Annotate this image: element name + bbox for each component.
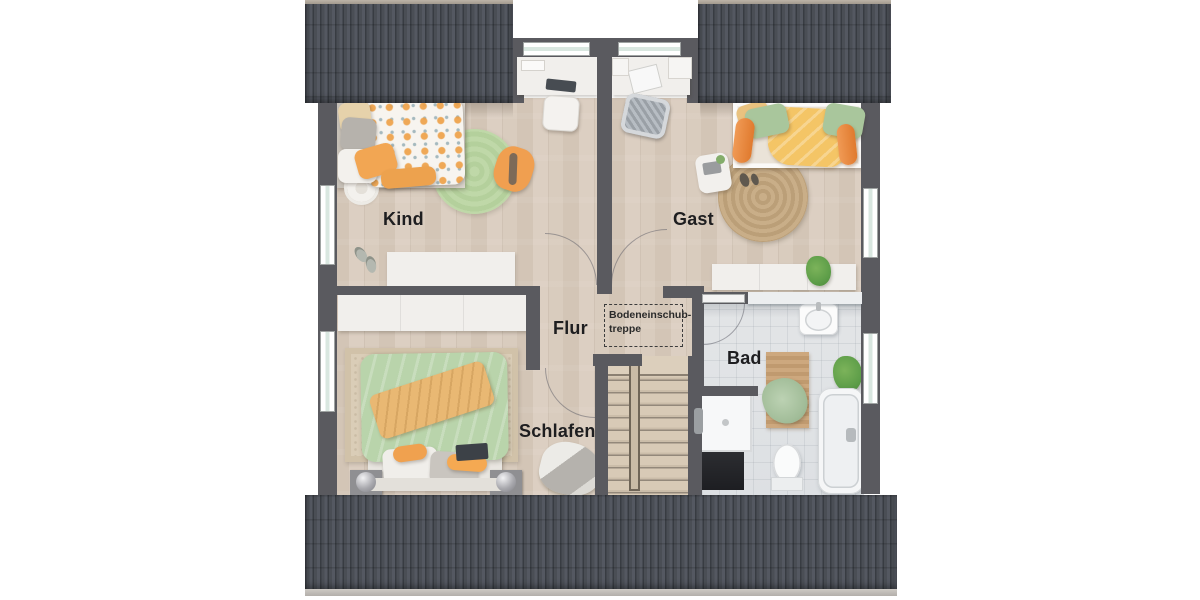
attic-hatch-outline: Bodeneinschub- treppe <box>604 304 683 347</box>
tablet-on-bed <box>455 443 488 461</box>
room-label-flur: Flur <box>553 318 588 339</box>
doll-on-cushion <box>508 153 517 185</box>
dresser-kind <box>387 252 515 287</box>
shower-head <box>694 408 703 434</box>
room-label-schlafen: Schlafen <box>519 421 596 442</box>
dormer-window-right <box>618 42 681 56</box>
toilet-tank <box>771 477 803 491</box>
bath-cabinet-black <box>696 452 744 490</box>
shower-drain <box>722 419 729 426</box>
room-label-bad: Bad <box>727 348 762 369</box>
window-gast-right <box>863 188 878 258</box>
floor-plan-canvas: Bodeneinschub- treppe Kind Gast Flur Sch… <box>0 0 1200 600</box>
kneewall-bad-north <box>748 292 862 304</box>
wall-kind-schlafen <box>318 286 535 295</box>
wall-stub-schlafen-east <box>526 286 540 370</box>
sphere-lamp-left <box>356 472 376 492</box>
wall-kind-gast <box>597 38 612 294</box>
room-label-gast: Gast <box>673 209 714 230</box>
bad-door-leaf <box>702 294 745 303</box>
attic-hatch-label-line2: treppe <box>609 322 678 336</box>
desk-shelf-gast-left <box>612 58 629 76</box>
window-schlafen-left <box>320 331 335 412</box>
desk-shelf-kind <box>521 60 545 71</box>
wall-stair-left <box>595 360 608 497</box>
wardrobe-schlafen <box>338 293 527 331</box>
window-kind-left <box>320 185 335 265</box>
bath-sink-faucet <box>816 302 821 311</box>
desk-chair-kind <box>542 95 580 132</box>
desk-shelf-gast-right <box>668 57 692 79</box>
window-bad-right <box>863 333 878 404</box>
roof-ridge-left <box>305 0 513 4</box>
stair-railing <box>629 360 640 491</box>
plant-gast <box>806 256 831 286</box>
wall-left <box>318 98 337 497</box>
roof-bottom <box>305 495 897 590</box>
bed-schlafen-headboard <box>368 478 502 491</box>
room-label-kind: Kind <box>383 209 424 230</box>
roof-top-right <box>698 0 891 103</box>
dormer-window-left <box>523 42 590 56</box>
shower-wall <box>692 386 758 396</box>
roof-ridge-right <box>698 0 891 4</box>
bath-sink-basin <box>805 309 832 331</box>
sprig-on-nightstand <box>716 155 725 164</box>
attic-hatch-label-line1: Bodeneinschub- <box>609 308 678 322</box>
sphere-lamp-right <box>496 472 516 492</box>
plant-bad <box>833 356 862 392</box>
sideboard-gast <box>712 264 856 290</box>
wall-stair-top <box>593 354 642 366</box>
staircase <box>608 356 688 497</box>
bathtub-faucet <box>846 428 856 442</box>
roof-bottom-eave <box>305 589 897 596</box>
wall-right <box>861 98 880 494</box>
roof-top-left <box>305 0 513 103</box>
